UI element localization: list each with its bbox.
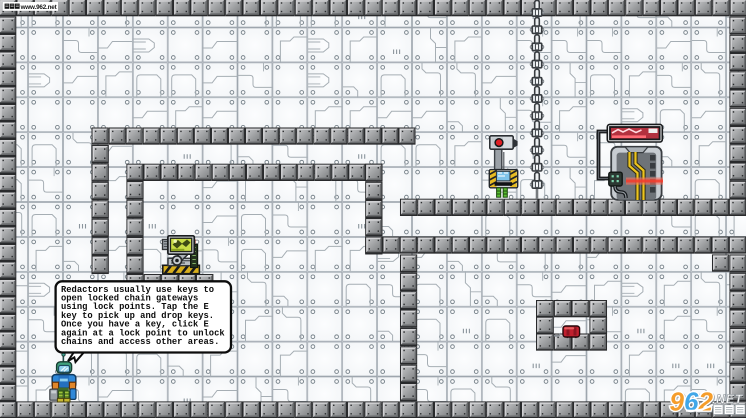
svg-text:9: 9 xyxy=(670,387,685,417)
svg-text:www.962.net: www.962.net xyxy=(20,4,58,11)
svg-text:Redactors usually use keys too: Redactors usually use keys toopen locked… xyxy=(61,285,225,347)
svg-text:.NET: .NET xyxy=(712,393,744,407)
